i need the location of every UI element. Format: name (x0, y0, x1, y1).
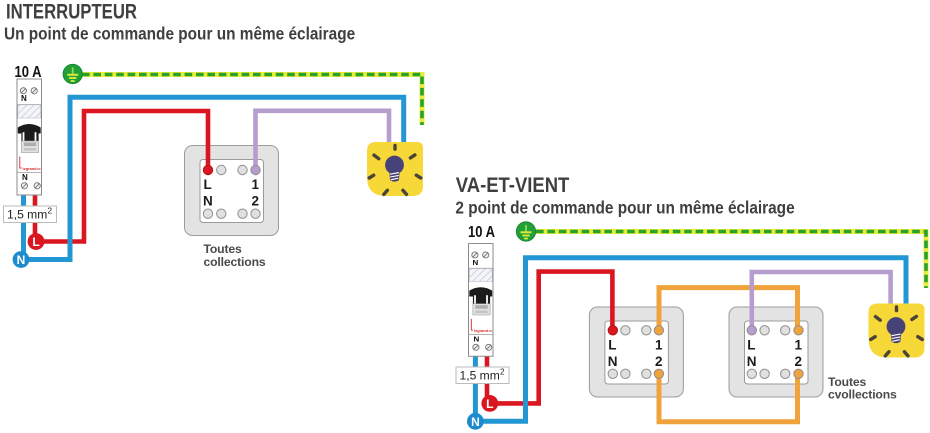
svg-text:10 A: 10 A (468, 224, 495, 241)
svg-text:2 point de commande pour un mê: 2 point de commande pour un même éclaira… (455, 199, 794, 218)
svg-text:2: 2 (655, 354, 663, 369)
svg-text:N: N (17, 253, 26, 267)
svg-text:1: 1 (795, 337, 803, 352)
svg-text:1,5 mm: 1,5 mm (7, 208, 47, 222)
svg-text:L: L (608, 337, 616, 352)
svg-text:L: L (32, 235, 39, 249)
svg-text:Un point de commande pour un m: Un point de commande pour un même éclair… (4, 24, 355, 43)
svg-text:N: N (608, 354, 618, 369)
svg-text:N: N (203, 194, 213, 209)
svg-text:L: L (747, 337, 755, 352)
svg-text:VA-ET-VIENT: VA-ET-VIENT (456, 174, 570, 197)
svg-text:2: 2 (795, 354, 803, 369)
svg-text:2: 2 (48, 207, 53, 216)
svg-text:L: L (486, 397, 493, 411)
svg-text:1: 1 (655, 337, 663, 352)
svg-text:collections: collections (204, 255, 266, 269)
svg-text:cvollections: cvollections (828, 388, 897, 402)
svg-text:1: 1 (252, 177, 260, 192)
svg-text:1,5 mm: 1,5 mm (460, 369, 500, 383)
svg-text:10 A: 10 A (15, 64, 42, 81)
svg-text:N: N (747, 354, 757, 369)
svg-text:Toutes: Toutes (204, 242, 243, 256)
svg-text:N: N (471, 415, 480, 429)
svg-text:L: L (204, 177, 212, 192)
svg-text:INTERRUPTEUR: INTERRUPTEUR (6, 1, 137, 24)
svg-text:2: 2 (500, 368, 505, 377)
svg-text:2: 2 (252, 194, 260, 209)
